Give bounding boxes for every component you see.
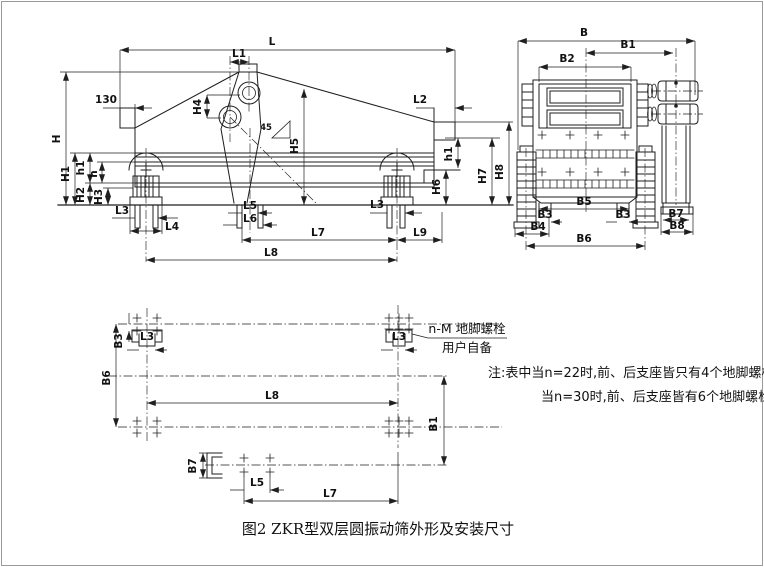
dim-label-H3: H3 [93,189,105,205]
dim-label-L3-plan-left: L3 [140,331,154,343]
anchor-bolt-callout: n-M 地脚螺栓 用户自备 [412,321,507,355]
dim-label-B3-plan: B3 [113,333,125,348]
dim-label-L5-plan: L5 [250,477,264,489]
side-view: 45 L L1 130 L2 H H1 h1 [51,36,513,262]
dim-label-H8: H8 [494,164,506,180]
dim-ext-B [518,41,695,150]
end-support-column [661,126,693,214]
angle-triangle-symbol [272,121,290,138]
dim-label-h1-left: h1 [75,161,87,176]
dim-label-L8-side: L8 [264,247,278,259]
dim-label-B3-right: B3 [615,209,630,221]
figure-caption: 图2 ZKR型双层圆振动筛外形及安装尺寸 [242,520,514,538]
dim-label-h1-right: h1 [443,147,455,162]
dim-label-B6-end: B6 [576,233,591,245]
dim-label-B3-left: B3 [537,209,552,221]
dim-label-B7-end: B7 [668,208,683,220]
dim-label-B8: B8 [669,220,684,232]
dim-label-B7-plan: B7 [187,458,199,473]
callout-line2: 用户自备 [442,340,493,355]
dim-label-L4: L4 [165,221,179,233]
dim-label-B1-end: B1 [620,39,635,51]
dim-label-H5: H5 [289,138,301,154]
motor-cylinders [658,81,698,124]
dim-label-L3-left: L3 [115,205,129,217]
engineering-drawing: 45 L L1 130 L2 H H1 h1 [0,0,764,567]
dim-label-H1: H1 [60,166,72,182]
end-vibrator-motors [648,81,698,124]
dim-label-H6: H6 [431,179,443,195]
dim-label-B6-plan: B6 [101,370,113,385]
dim-label-L3-right: L3 [370,199,384,211]
dim-label-L: L [269,36,276,48]
dim-label-H2: H2 [75,187,87,203]
dim-ext-L [120,50,455,122]
dim-label-130: 130 [95,94,117,106]
dim-label-L2: L2 [413,94,427,106]
note-block: 注:表中当n=22时,前、后支座皆只有4个地脚螺栓、 当n=30时,前、后支座皆… [488,365,764,405]
note-line1: 注:表中当n=22时,前、后支座皆只有4个地脚螺栓、 [488,365,764,381]
dim-label-B: B [580,27,588,39]
note-line2: 当n=30时,前、后支座皆有6个地脚螺栓 [541,389,764,405]
dim-label-B1-plan: B1 [428,416,440,431]
dim-label-L1: L1 [232,48,246,60]
end-flange-bolt-crosses [538,131,629,176]
end-view: B B1 B2 B5 B3 B3 B4 B6 B7 B8 [514,27,703,250]
dim-label-B5: B5 [576,196,591,208]
motor-couplings [648,84,657,121]
dim-label-L9: L9 [413,227,427,239]
dim-label-L3-plan-right: L3 [392,331,406,343]
dim-label-L8-plan: L8 [265,390,279,402]
dim-label-B2: B2 [559,53,574,65]
dim-label-L7-side: L7 [311,227,325,239]
dim-label-H: H [51,135,63,144]
dim-label-B4: B4 [530,221,545,233]
slope-centerline [230,117,318,205]
dim-label-angle: 45 [260,123,272,133]
dim-label-H4: H4 [192,99,204,115]
dim-label-L5-mid: L5 [243,200,257,212]
dim-ext-H4 [207,95,240,118]
dim-label-H7: H7 [477,168,489,184]
dim-label-h: h [88,170,100,177]
dim-label-L6: L6 [243,213,257,225]
end-deck-strips [536,150,634,188]
figure-canvas: 45 L L1 130 L2 H H1 h1 [0,0,764,567]
plan-bracket-discharge [207,453,222,478]
callout-line1: n-M 地脚螺栓 [428,321,506,336]
dim-label-L7-plan: L7 [323,488,337,500]
